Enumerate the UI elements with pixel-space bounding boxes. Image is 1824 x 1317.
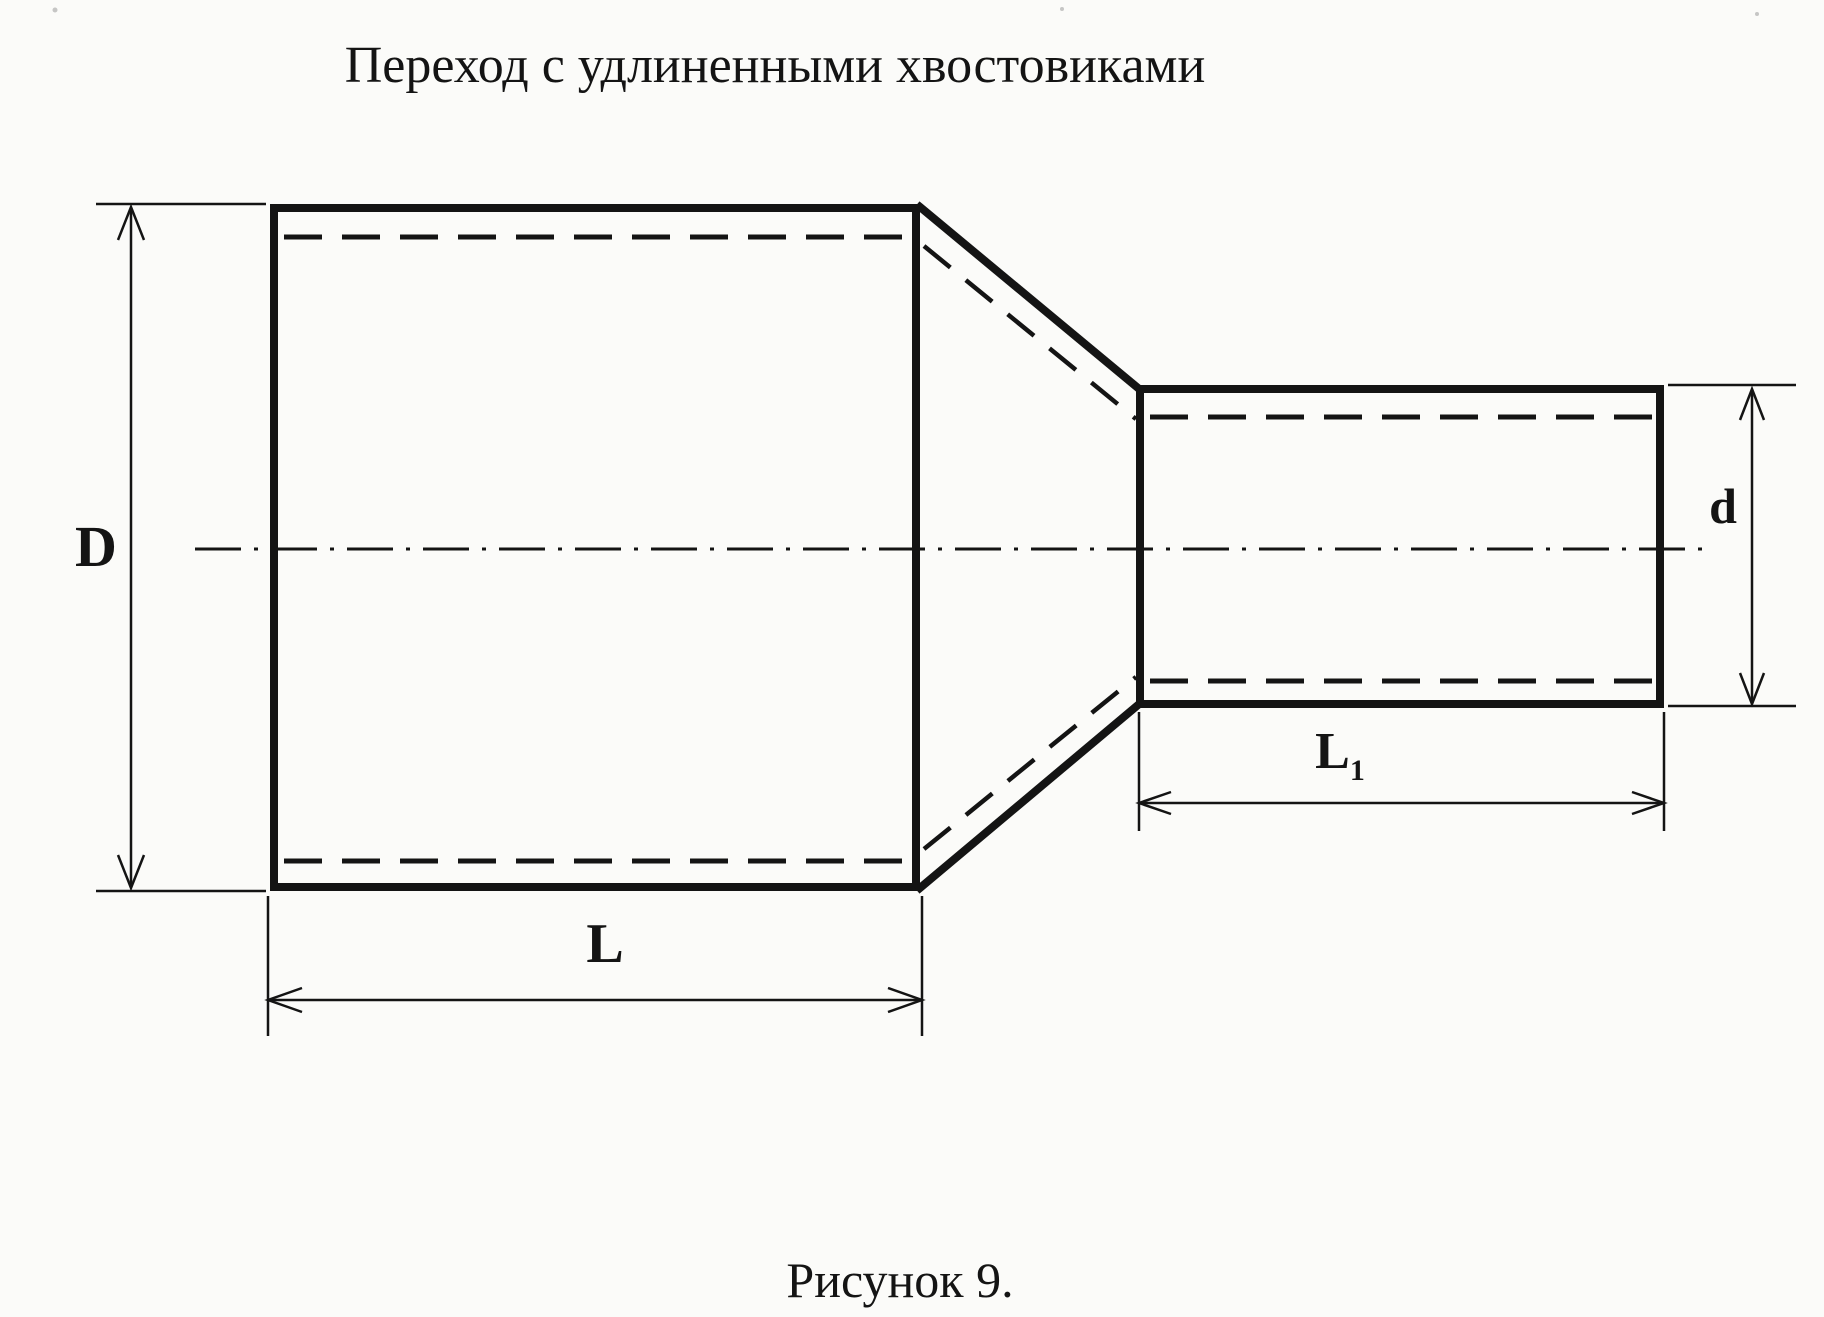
small-pipe [1140, 389, 1660, 704]
dimension-d: d [1668, 385, 1796, 706]
technical-drawing: Переход с удлиненными хвостовиками [0, 0, 1824, 1317]
label-L1-subscript: 1 [1350, 754, 1365, 787]
cone-bottom-edge [920, 705, 1138, 888]
cone-bore-bottom [924, 677, 1136, 849]
label-D: D [75, 514, 117, 579]
cone-bore-top [924, 246, 1136, 419]
scan-speck [53, 8, 58, 13]
drawing-title: Переход с удлиненными хвостовиками [345, 37, 1206, 94]
label-L: L [586, 913, 623, 975]
label-d: d [1709, 478, 1737, 534]
label-L1-base: L [1315, 723, 1350, 780]
scan-speck [1060, 7, 1064, 11]
dimension-L1: L1 [1139, 712, 1664, 831]
cone-top-edge [920, 207, 1138, 388]
dimension-L: L [268, 896, 922, 1036]
label-L1: L1 [1315, 723, 1365, 787]
cone-transition [920, 207, 1138, 888]
figure-caption: Рисунок 9. [786, 1252, 1013, 1308]
scan-speck [1755, 12, 1759, 16]
drawing-sheet: Переход с удлиненными хвостовиками [0, 0, 1824, 1317]
small-pipe-outline [1140, 389, 1660, 704]
